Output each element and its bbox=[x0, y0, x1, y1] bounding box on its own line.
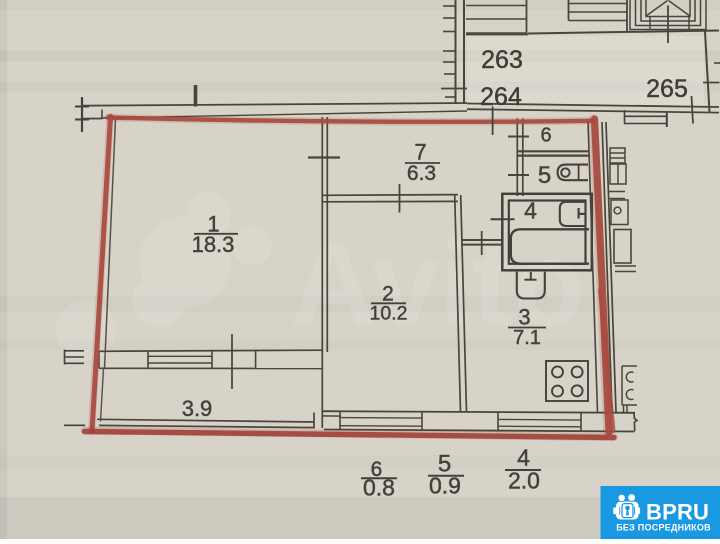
svg-text:2.0: 2.0 bbox=[508, 468, 540, 494]
svg-text:3: 3 bbox=[518, 305, 530, 330]
svg-text:10.2: 10.2 bbox=[370, 303, 408, 325]
svg-text:3.9: 3.9 bbox=[182, 396, 213, 421]
svg-text:6: 6 bbox=[540, 125, 551, 147]
svg-text:263: 263 bbox=[481, 46, 523, 74]
svg-text:18.3: 18.3 bbox=[192, 232, 235, 257]
svg-text:264: 264 bbox=[480, 83, 522, 111]
svg-text:0.9: 0.9 bbox=[429, 473, 461, 499]
svg-text:7.1: 7.1 bbox=[513, 327, 541, 349]
svg-text:0.8: 0.8 bbox=[363, 475, 395, 501]
svg-text:5: 5 bbox=[538, 162, 551, 189]
svg-text:БЕЗ ПОСРЕДНИКОВ: БЕЗ ПОСРЕДНИКОВ bbox=[616, 522, 711, 532]
svg-text:265: 265 bbox=[646, 75, 688, 103]
svg-text:7: 7 bbox=[414, 140, 426, 165]
svg-text:4: 4 bbox=[524, 198, 537, 224]
svg-text:6.3: 6.3 bbox=[407, 162, 436, 185]
svg-text:BPRU: BPRU bbox=[646, 500, 709, 525]
svg-text:Avito: Avito bbox=[290, 217, 586, 351]
